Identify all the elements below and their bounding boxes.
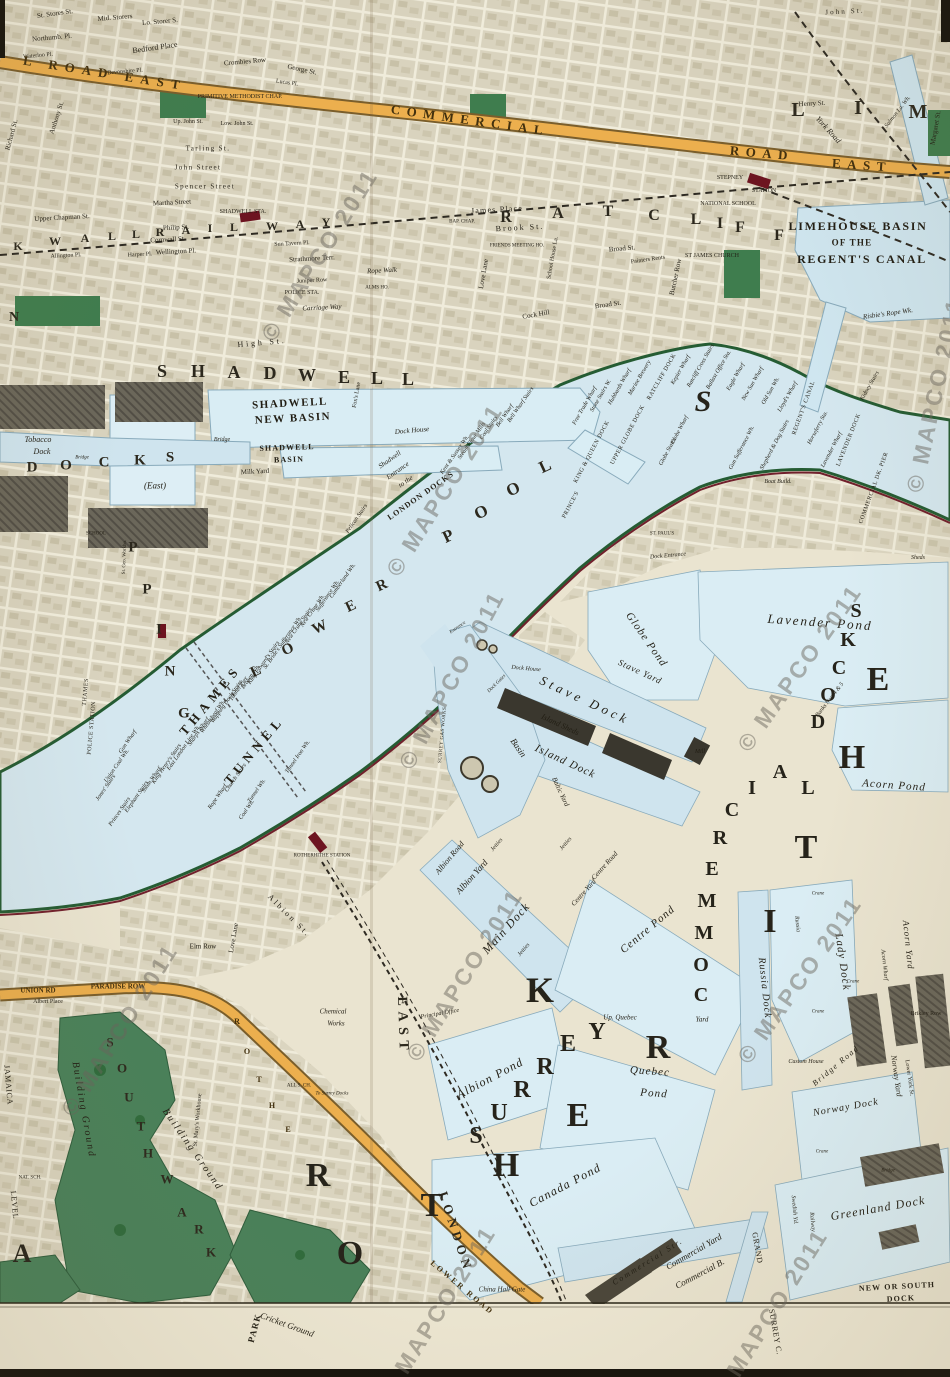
- map-label: Dock Entrance: [650, 551, 687, 560]
- map-label: K: [13, 240, 22, 252]
- map-label: TUNNEL: [222, 713, 287, 787]
- map-label: R: [513, 1078, 530, 1102]
- map-label: Brook St.: [495, 223, 544, 234]
- map-label: Albion St.: [266, 893, 312, 939]
- map-label: Jetties: [559, 836, 573, 852]
- map-label: Basin: [508, 737, 527, 759]
- map-label: T: [795, 831, 818, 865]
- map-label: Up. John St.: [173, 119, 203, 125]
- map-label: Carriage Way: [302, 303, 342, 312]
- map-label: EAST: [832, 156, 893, 173]
- map-label: Wellington Pl.: [156, 247, 197, 256]
- map-label: School House La.: [546, 236, 559, 279]
- map-label: JAMAICA: [2, 1065, 13, 1106]
- map-label: Coal Wh.: [238, 799, 256, 821]
- map-label: E: [338, 368, 350, 386]
- map-label: T: [256, 1076, 261, 1084]
- map-label: to the: [398, 475, 415, 490]
- map-label: SHADWELL: [259, 443, 314, 453]
- map-label: SHADWELL: [252, 397, 328, 412]
- map-label: SCHOOL: [86, 532, 106, 537]
- map-label: K: [840, 630, 856, 650]
- map-label: UNION RD: [20, 988, 55, 995]
- map-label: W: [310, 618, 330, 638]
- map-label: A: [228, 363, 241, 381]
- map-label: BASIN: [274, 455, 304, 464]
- map-label: Anthony St.: [48, 101, 65, 135]
- map-label: GRAND: [750, 1232, 763, 1265]
- map-label: PARK: [247, 1312, 263, 1343]
- map-label: UPPER GLOBE DOCK: [610, 404, 646, 465]
- map-label: D: [27, 461, 38, 476]
- map-label: S: [157, 362, 167, 380]
- map-label: O: [117, 1062, 127, 1075]
- map-label: Tunnel Iron Wh.: [284, 739, 311, 774]
- map-label: Norway Dock: [812, 1097, 879, 1118]
- map-label: PRIMITIVE METHODIST CHAP.: [198, 94, 283, 100]
- map-label: COMMERCIAL DK. PIER: [858, 451, 890, 524]
- watermark: © MAPCO 2011: [58, 940, 183, 1120]
- map-label: Henry St.: [798, 100, 825, 108]
- map-label: Marine Brewery: [628, 359, 653, 396]
- map-label: NEW BASIN: [255, 412, 332, 427]
- map-label: H: [191, 362, 205, 380]
- map-label: Pond: [640, 1088, 668, 1101]
- map-label: Albert Place: [33, 999, 63, 1005]
- map-label: Bridge: [214, 437, 230, 443]
- map-label: E: [567, 1099, 590, 1133]
- map-label: ALL S. CH.: [287, 1084, 311, 1089]
- map-label: P: [142, 583, 151, 598]
- map-label: NEW OR SOUTH: [859, 1281, 936, 1293]
- map-label: Broad St.: [609, 244, 636, 253]
- map-label: L: [801, 778, 814, 798]
- map-label: James Place: [471, 205, 523, 216]
- map-label: W: [298, 366, 316, 384]
- map-label: Risbie's Rope Wk.: [863, 307, 914, 321]
- map-label: Works: [327, 1021, 344, 1028]
- map-label: R: [646, 1031, 671, 1065]
- map-label: H: [839, 741, 865, 775]
- map-label: Sheds: [911, 555, 925, 561]
- map-label: OF THE: [832, 239, 873, 248]
- map-label: St. Stores St.: [37, 8, 74, 20]
- map-label: Tarling St.: [186, 146, 231, 153]
- map-label: Sun Tavern Pl.: [274, 240, 310, 248]
- map-label: REGENT'S CANAL: [797, 253, 927, 265]
- map-label: China Hall Gate: [479, 1287, 526, 1294]
- map-label: POLICE STATION: [87, 701, 98, 755]
- map-label: E: [705, 859, 718, 879]
- map-label: A: [773, 762, 787, 782]
- map-label: U: [124, 1091, 133, 1104]
- map-label: Norway Yard: [889, 1055, 903, 1098]
- map-label: I: [208, 222, 213, 234]
- map-label: L ROAD EAST: [22, 54, 187, 93]
- map-label: Martha Street: [153, 199, 192, 208]
- map-label: I: [748, 778, 756, 798]
- map-label: R: [536, 1055, 553, 1079]
- map-label: Cricket Ground: [259, 1311, 315, 1339]
- map-label: Boat Build.: [764, 479, 791, 485]
- map-label: Fox's Lane: [352, 382, 362, 409]
- map-label: Dock: [34, 448, 51, 456]
- map-label: Spencer Street: [175, 184, 235, 191]
- map-canvas: St. Stores St.Mid. StorersLo. Storer S.N…: [0, 0, 950, 1377]
- map-label: Rope Walk: [367, 267, 397, 276]
- map-label: L: [108, 230, 116, 242]
- map-label: NATIONAL SCHOOL: [700, 201, 756, 207]
- map-label: A: [296, 218, 305, 230]
- map-label: SHADWELL STA.: [220, 209, 267, 215]
- watermark: © MAPCO 2011: [403, 885, 528, 1065]
- watermark: © MAPCO 2011: [734, 580, 867, 756]
- map-label: Yard: [696, 1017, 709, 1024]
- map-label: John St.: [825, 7, 865, 16]
- map-label: St. Mary's Workhouse: [193, 1093, 204, 1146]
- map-label: Jetties: [490, 837, 504, 853]
- map-label: Greenland Dock: [830, 1194, 927, 1222]
- map-label: STATION: [752, 188, 777, 194]
- map-label: Y: [588, 1020, 605, 1044]
- map-label: LEVEL: [9, 1190, 19, 1219]
- map-label: ROAD: [729, 144, 794, 163]
- map-label: M: [695, 923, 714, 943]
- map-label: O: [60, 459, 72, 474]
- map-label: E: [867, 663, 890, 697]
- map-label: (East): [144, 482, 166, 491]
- map-label: KING & QUEEN DOCK: [573, 420, 611, 484]
- map-label: R: [306, 1159, 331, 1193]
- map-label: Lloyd's Wharf: [777, 381, 799, 413]
- map-label-layer: St. Stores St.Mid. StorersLo. Storer S.N…: [0, 0, 950, 1377]
- map-label: To Surrey Docks: [316, 1092, 349, 1097]
- map-label: Richard St.: [5, 119, 20, 151]
- map-label: Globe Stairs: [658, 437, 677, 466]
- map-label: P: [440, 526, 457, 546]
- map-label: A: [13, 1241, 32, 1267]
- map-label: Bridge Road: [811, 1044, 861, 1088]
- map-label: Bridge: [881, 1169, 895, 1174]
- map-label: NAT. SCH.: [19, 1176, 42, 1181]
- map-label: Horseferry Sta.: [807, 410, 830, 445]
- watermark: © MAPCO 2011: [708, 1225, 833, 1377]
- map-label: Elm Row: [190, 944, 217, 951]
- map-label: N: [165, 665, 176, 680]
- map-label: S: [469, 1124, 482, 1148]
- map-label: John Street: [175, 165, 222, 172]
- map-label: York Road: [814, 115, 842, 145]
- map-label: Upper Chapman St.: [34, 213, 90, 223]
- map-label: Mill: [695, 749, 705, 755]
- map-label: Kidney Stairs: [859, 370, 880, 401]
- map-label: R: [374, 577, 390, 595]
- map-label: Bedford Place: [132, 41, 178, 55]
- map-label: L: [132, 228, 140, 240]
- map-label: George St.: [287, 63, 318, 76]
- map-label: K: [206, 1246, 216, 1259]
- map-label: Lo. Storer S.: [142, 17, 178, 27]
- map-label: W: [161, 1173, 174, 1186]
- map-label: H: [493, 1149, 519, 1183]
- map-label: Island Sheds: [540, 713, 580, 737]
- map-label: ST. PAUL'S: [650, 532, 674, 537]
- map-label: Tobacco: [25, 436, 52, 444]
- map-label: Dock House: [511, 665, 541, 674]
- map-label: L: [536, 456, 553, 476]
- map-label: Dock House: [395, 426, 430, 436]
- map-label: U: [490, 1101, 507, 1125]
- map-label: O: [503, 478, 522, 499]
- map-label: Acorn Wharf: [879, 949, 888, 981]
- map-label: R: [194, 1223, 203, 1236]
- map-label: A: [81, 232, 90, 244]
- map-label: Allington Pl.: [50, 252, 81, 260]
- map-label: Acorn Yard: [901, 920, 915, 970]
- map-label: Milk Yard: [241, 468, 270, 476]
- map-label: E: [343, 598, 358, 616]
- map-label: Cock Hill: [522, 309, 550, 321]
- map-label: L: [230, 221, 238, 233]
- map-label: F: [735, 220, 745, 236]
- map-label: Baltic Yard: [550, 776, 570, 807]
- map-label: Centre Road: [591, 851, 620, 882]
- map-label: Up. Quebec: [603, 1015, 636, 1022]
- watermark: © MAPCO 2011: [395, 587, 508, 773]
- map-label: Cumberland Wh.: [329, 562, 357, 599]
- map-label: Eagle Wharf: [726, 362, 746, 391]
- map-label: Chemical: [320, 1009, 347, 1016]
- map-label: STEPNEY: [717, 175, 743, 181]
- map-label: LIMEHOUSE BASIN: [789, 220, 928, 232]
- map-label: Butcher Row: [669, 258, 684, 296]
- map-label: Dock Gates: [487, 674, 507, 694]
- map-label: Painters Rents: [631, 255, 666, 266]
- map-label: Hubbards Wharf: [607, 368, 632, 406]
- map-label: Margaret St.: [930, 110, 943, 146]
- map-label: C: [648, 208, 660, 224]
- map-label: A: [552, 206, 564, 222]
- map-label: Mid. Storers: [97, 13, 132, 23]
- map-label: E: [560, 1032, 576, 1056]
- map-label: Crane: [816, 1150, 829, 1155]
- map-label: S: [166, 451, 174, 466]
- map-label: Russia: [793, 916, 801, 933]
- map-label: W: [49, 235, 61, 247]
- map-label: C: [725, 800, 739, 820]
- map-label: I: [854, 98, 862, 118]
- map-label: W: [266, 220, 278, 232]
- map-label: Broad St.: [594, 300, 621, 311]
- map-label: D: [264, 364, 277, 382]
- map-label: O: [820, 685, 836, 705]
- map-label: L: [691, 212, 702, 228]
- map-label: ST JAMES CHURCH: [685, 253, 739, 259]
- map-label: Canada Pond: [527, 1161, 603, 1209]
- map-label: Northumb. Pl.: [32, 33, 72, 43]
- map-label: D: [811, 712, 825, 732]
- watermark: © MAPCO 2011: [903, 296, 950, 495]
- map-label: Quebec: [630, 1065, 671, 1079]
- map-label: COMMERCIAL: [390, 102, 550, 137]
- map-label: T: [137, 1120, 146, 1133]
- map-label: Jetties: [517, 942, 531, 958]
- map-label: FRIENDS MEETING HO.: [490, 244, 544, 249]
- map-label: P: [128, 541, 137, 556]
- map-label: O: [337, 1237, 363, 1271]
- map-label: E: [285, 1126, 290, 1134]
- map-label: L: [402, 370, 414, 388]
- map-label: Custom House: [788, 1059, 823, 1065]
- map-label: C: [694, 985, 708, 1005]
- map-label: Love Lane: [478, 259, 490, 290]
- map-label: O: [693, 955, 709, 975]
- map-label: Crane: [847, 980, 860, 985]
- map-label: Island Dock: [533, 743, 597, 781]
- map-label: Shepherd & Dog Stairs: [759, 419, 791, 471]
- map-label: Low. John St.: [221, 121, 254, 127]
- map-label: Swedish Yd.: [790, 1195, 799, 1224]
- map-label: DOCK: [887, 1294, 916, 1303]
- map-label: THAMES: [82, 678, 90, 706]
- map-label: New Sun Wharf: [741, 366, 765, 402]
- map-label: Albion Road: [434, 840, 466, 876]
- map-label: Old Sun Wh.: [761, 376, 781, 405]
- map-label: Lower York St.: [903, 1059, 914, 1096]
- map-label: N: [9, 311, 19, 325]
- map-label: Centre Yard: [570, 878, 597, 907]
- map-label: R: [156, 226, 165, 238]
- map-label: Centre Pond: [619, 904, 678, 956]
- map-label: Crane: [812, 892, 825, 897]
- map-label: PRINCE'S: [561, 491, 580, 520]
- map-label: BAP. CHAP.: [449, 220, 475, 225]
- map-label: Bridge: [75, 456, 89, 461]
- map-label: Brikley Row: [911, 1011, 942, 1017]
- map-label: Albion Yard: [454, 858, 489, 896]
- map-label: A: [182, 224, 191, 236]
- map-label: H: [143, 1147, 153, 1160]
- map-label: O: [471, 501, 490, 522]
- map-label: T: [603, 204, 614, 220]
- map-label: K: [134, 454, 146, 469]
- map-label: M: [698, 891, 717, 911]
- map-label: Love Lane: [228, 923, 240, 954]
- map-label: Gun Sufferance Wh.: [728, 425, 756, 471]
- map-label: I: [763, 905, 776, 939]
- map-label: C: [832, 658, 846, 678]
- map-label: I: [156, 623, 162, 638]
- map-label: St. Geo. Workho.: [122, 540, 128, 575]
- map-label: H: [269, 1102, 275, 1110]
- map-label: F: [774, 228, 784, 244]
- map-label: S: [695, 387, 712, 417]
- map-label: ALMS HO.: [365, 286, 389, 291]
- map-label: Crane: [812, 1010, 825, 1015]
- map-label: R: [713, 828, 727, 848]
- map-label: T: [421, 1189, 444, 1223]
- map-label: L: [371, 369, 383, 387]
- map-label: M: [909, 102, 928, 122]
- map-label: ROTHERHITHE STATION: [294, 854, 351, 859]
- map-label: Harper Pl.: [128, 251, 153, 258]
- map-label: K: [526, 972, 554, 1008]
- watermark: © MAPCO 2011: [258, 165, 383, 345]
- map-label: I: [717, 216, 723, 232]
- map-label: R: [234, 1018, 240, 1026]
- map-label: Crombies Row: [224, 57, 267, 68]
- map-label: Pelican Stairs: [345, 503, 369, 534]
- map-label: O: [244, 1048, 250, 1056]
- map-label: Lucas Pl.: [276, 78, 299, 87]
- map-label: Acorn Pond: [862, 778, 926, 793]
- map-label: A: [177, 1206, 186, 1219]
- map-label: C: [99, 456, 110, 471]
